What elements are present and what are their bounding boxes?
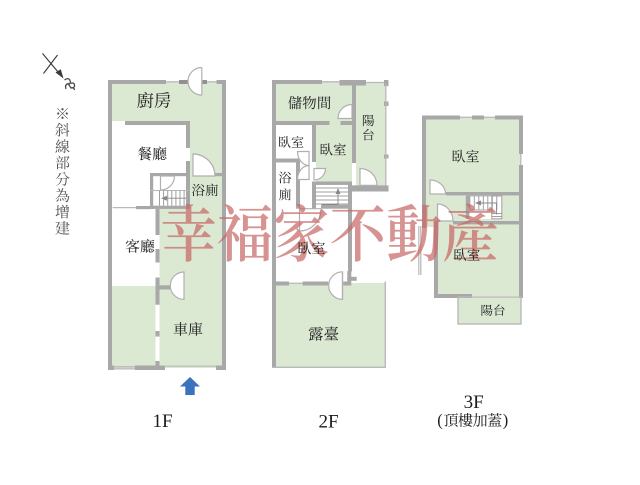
svg-text:1F: 1F [152, 411, 172, 432]
svg-text:3F: 3F [464, 392, 484, 413]
svg-text:): ) [503, 410, 509, 429]
svg-text:2F: 2F [318, 412, 338, 433]
svg-text:(: ( [437, 410, 443, 429]
